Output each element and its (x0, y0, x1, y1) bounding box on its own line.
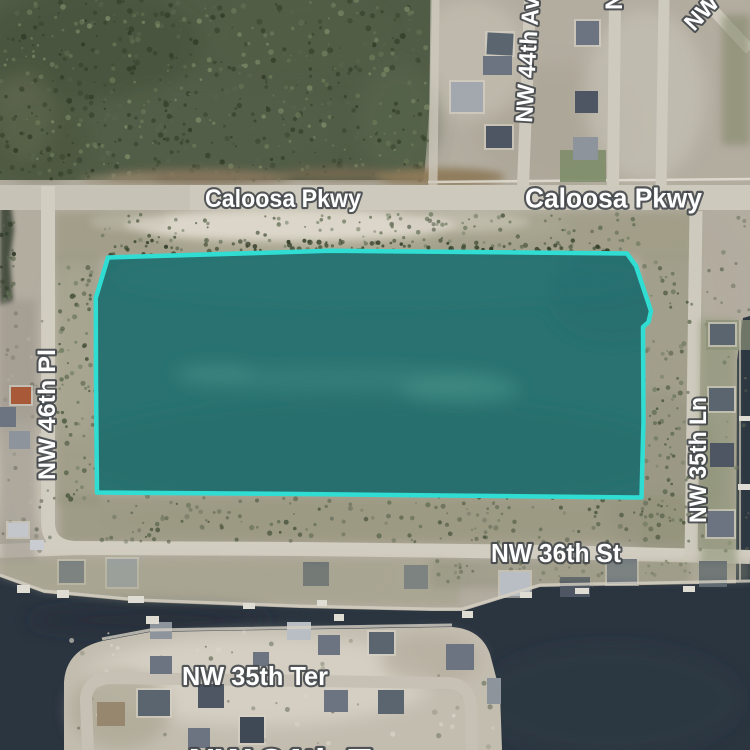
svg-text:Caloosa Pkwy: Caloosa Pkwy (205, 185, 361, 213)
svg-text:NW 35th Ter: NW 35th Ter (182, 661, 328, 691)
svg-text:Caloosa Pkwy: Caloosa Pkwy (525, 183, 703, 214)
svg-text:NW 36th St: NW 36th St (491, 538, 621, 568)
svg-text:NW 46th Pl: NW 46th Pl (34, 349, 61, 480)
svg-text:NW: NW (601, 0, 628, 10)
svg-text:NW 34th Ter: NW 34th Ter (189, 743, 404, 750)
svg-text:NW 35th Ln: NW 35th Ln (685, 397, 712, 523)
